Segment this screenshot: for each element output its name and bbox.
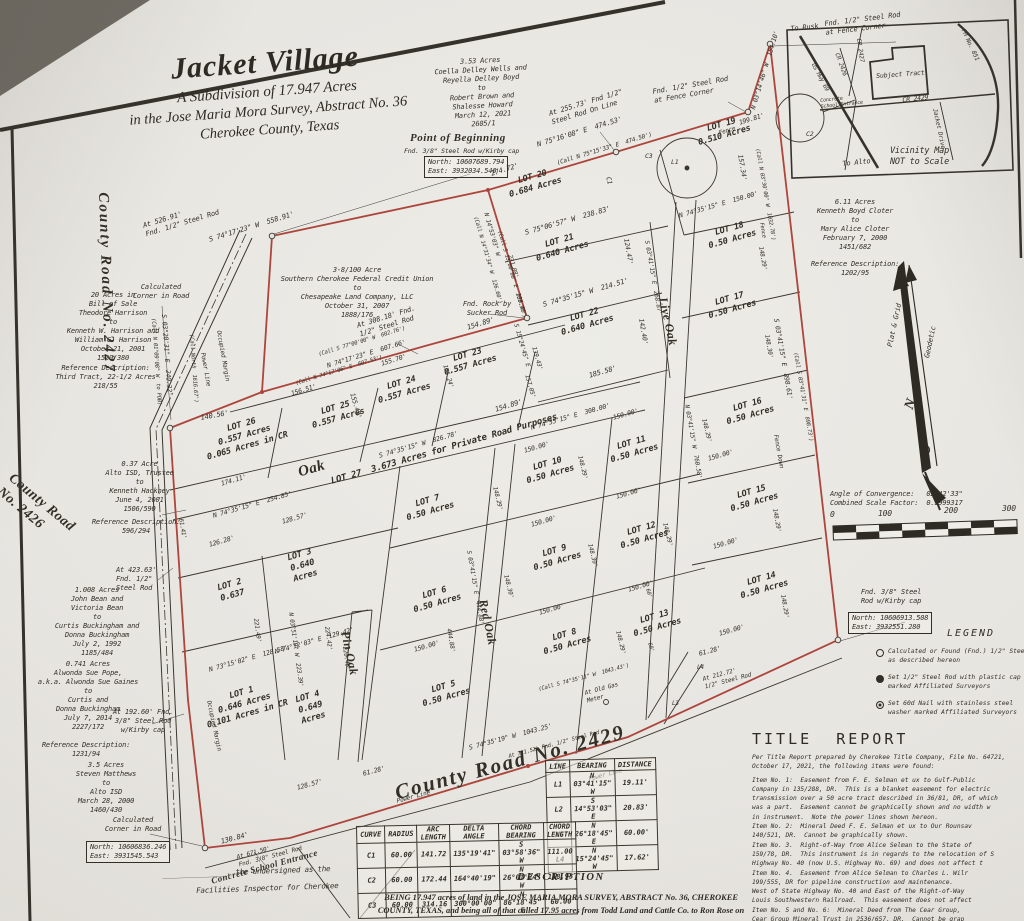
table-header: RADIUS <box>385 825 418 843</box>
map-label: Fnd. 3/8" Steel Rod w/Kirby cap <box>404 147 519 155</box>
scale-bar <box>833 520 1017 540</box>
map-label: Fnd. 3/8" Steel Rod w/Kirby cap <box>848 588 934 606</box>
scale-tick: 300 <box>1002 504 1016 514</box>
map-label: C2 <box>806 130 813 138</box>
table-row: L1N 03°41'15" W19.11' <box>546 770 656 798</box>
note-hackney: 0.37 Acre Alto ISD, Trustee to Kenneth H… <box>82 460 197 514</box>
table-cell: S 14°53'03" E <box>570 796 616 822</box>
legend-item: Set 60d Nail with stainless steel washer… <box>876 700 1024 717</box>
point-of-beginning-label: Point of Beginning <box>410 131 506 145</box>
map-label: L3 <box>672 700 679 708</box>
sw-corner-coordinates: North: 10606836.246 East: 3931545.543 <box>86 841 170 863</box>
description-block: DESCRIPTION BEING 17.947 acres of land i… <box>326 872 796 917</box>
table-header: CHORD LENGTH <box>543 822 576 840</box>
map-label: Reference Description: 1202/95 <box>795 260 915 278</box>
table-cell: 17.62' <box>617 845 658 871</box>
nail-circle-icon <box>876 701 884 709</box>
table-cell: 111.00 <box>544 839 577 865</box>
description-text: BEING 17.947 acres of land in the JOSE M… <box>326 891 796 917</box>
table-cell: 141.72 <box>417 842 450 868</box>
vicinity-caption: Vicinity Map NOT to Scale <box>872 146 967 168</box>
table-header: ARC LENGTH <box>417 825 450 843</box>
note-matthews: 3.5 Acres Steven Matthews to Alto ISD Ma… <box>50 761 162 815</box>
filled-circle-icon <box>876 675 884 683</box>
legend-item: Calculated or Found (Fnd.) 1/2" Steel Ro… <box>876 648 1024 665</box>
scale-tick: 100 <box>878 509 892 519</box>
note-credit-union: 3-8/100 Acre Southern Cherokee Federal C… <box>262 266 452 320</box>
open-circle-icon <box>876 649 884 657</box>
legend-item-text: Set 1/2" Steel Rod with plastic cap mark… <box>888 674 1021 691</box>
legend-item: Set 1/2" Steel Rod with plastic cap mark… <box>876 674 1024 691</box>
map-label: Reference Description: 1231/94 <box>26 741 146 759</box>
plat-photo: Jacket Village A Subdivision of 17.947 A… <box>0 0 1024 921</box>
scale-tick: 0 <box>830 510 835 520</box>
map-label: L1 <box>671 158 678 166</box>
table-cell: N 15°24'45" W <box>572 846 618 872</box>
table-cell: 60.00 <box>385 842 418 868</box>
title-report-heading: TITLE REPORT <box>752 730 1024 748</box>
convergence-note: Angle of Convergence: 02°42'33" Combined… <box>830 490 962 508</box>
legend-title: LEGEND <box>916 628 1024 639</box>
map-label: At 192.60' Fnd. 3/8" Steel Rod w/Kirby c… <box>103 708 183 735</box>
legend-item-text: Calculated or Found (Fnd.) 1/2" Steel Ro… <box>888 648 1024 665</box>
map-label: L4 <box>697 664 704 672</box>
table-cell: 60.00' <box>616 820 657 846</box>
table-cell: N 26°18'45" E <box>571 821 617 847</box>
note-cloter: 6.11 Acres Kenneth Boyd Cloter to Mary A… <box>792 198 918 252</box>
table-row: L2S 14°53'03" E20.83' <box>546 795 656 823</box>
table-cell: 20.83' <box>615 795 656 821</box>
map-label: Calculated Corner in Road <box>98 816 168 834</box>
table-header: CHORD BEARING <box>498 823 543 841</box>
title-report-intro: Per Title Report prepared by Cherokee Ti… <box>752 753 1024 772</box>
table-cell: L2 <box>546 797 571 823</box>
plat-photo-page: { "title_block": { "line1": "Jacket Vill… <box>0 0 1024 921</box>
table-cell: N 03°41'15" W <box>570 771 616 797</box>
note-wells-boyd: 3.53 Acres Coella Delley Wells and Reyel… <box>420 54 544 132</box>
map-label: Fnd. Rock by Sucker Rod <box>452 300 522 318</box>
table-cell: 135°19'41" <box>450 841 500 867</box>
table-header: DISTANCE <box>614 758 655 771</box>
north-arrow-icon <box>893 261 946 510</box>
table-cell: S 03°58'36" W <box>499 840 544 866</box>
description-heading: DESCRIPTION <box>326 872 796 883</box>
table-cell: L1 <box>546 772 571 798</box>
table-cell: 19.11' <box>615 770 656 796</box>
legend: LEGEND Calculated or Found (Fnd.) 1/2" S… <box>876 628 1024 717</box>
legend-item-text: Set 60d Nail with stainless steel washer… <box>888 700 1017 717</box>
table-header: LINE <box>546 760 570 773</box>
scale-tick: 200 <box>944 506 958 516</box>
map-label: C3 <box>645 152 652 160</box>
table-cell: C1 <box>357 843 386 869</box>
table-header: DELTA ANGLE <box>449 824 499 842</box>
table-header: CURVE <box>357 826 385 844</box>
note-bean: 1.008 Acres John Bean and Victoria Bean … <box>36 586 158 658</box>
